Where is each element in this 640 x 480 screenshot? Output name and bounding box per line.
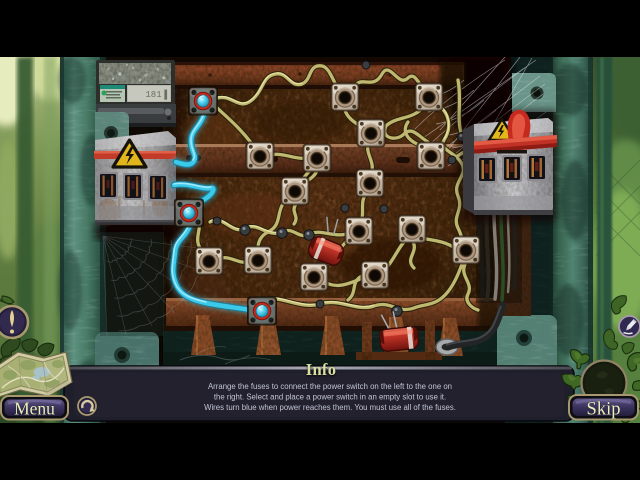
svg-text:Wires turn blue when power rea: Wires turn blue when power reaches them.…: [204, 403, 456, 412]
svg-text:181▐: 181▐: [145, 89, 167, 100]
svg-text:Skip: Skip: [587, 400, 621, 420]
svg-text:Menu: Menu: [14, 399, 55, 419]
svg-text:Info: Info: [306, 360, 337, 379]
svg-text:the right. Select and place a: the right. Select and place a power swit…: [214, 393, 446, 402]
svg-text:Arrange the fuses to connect t: Arrange the fuses to connect the power s…: [208, 382, 452, 391]
